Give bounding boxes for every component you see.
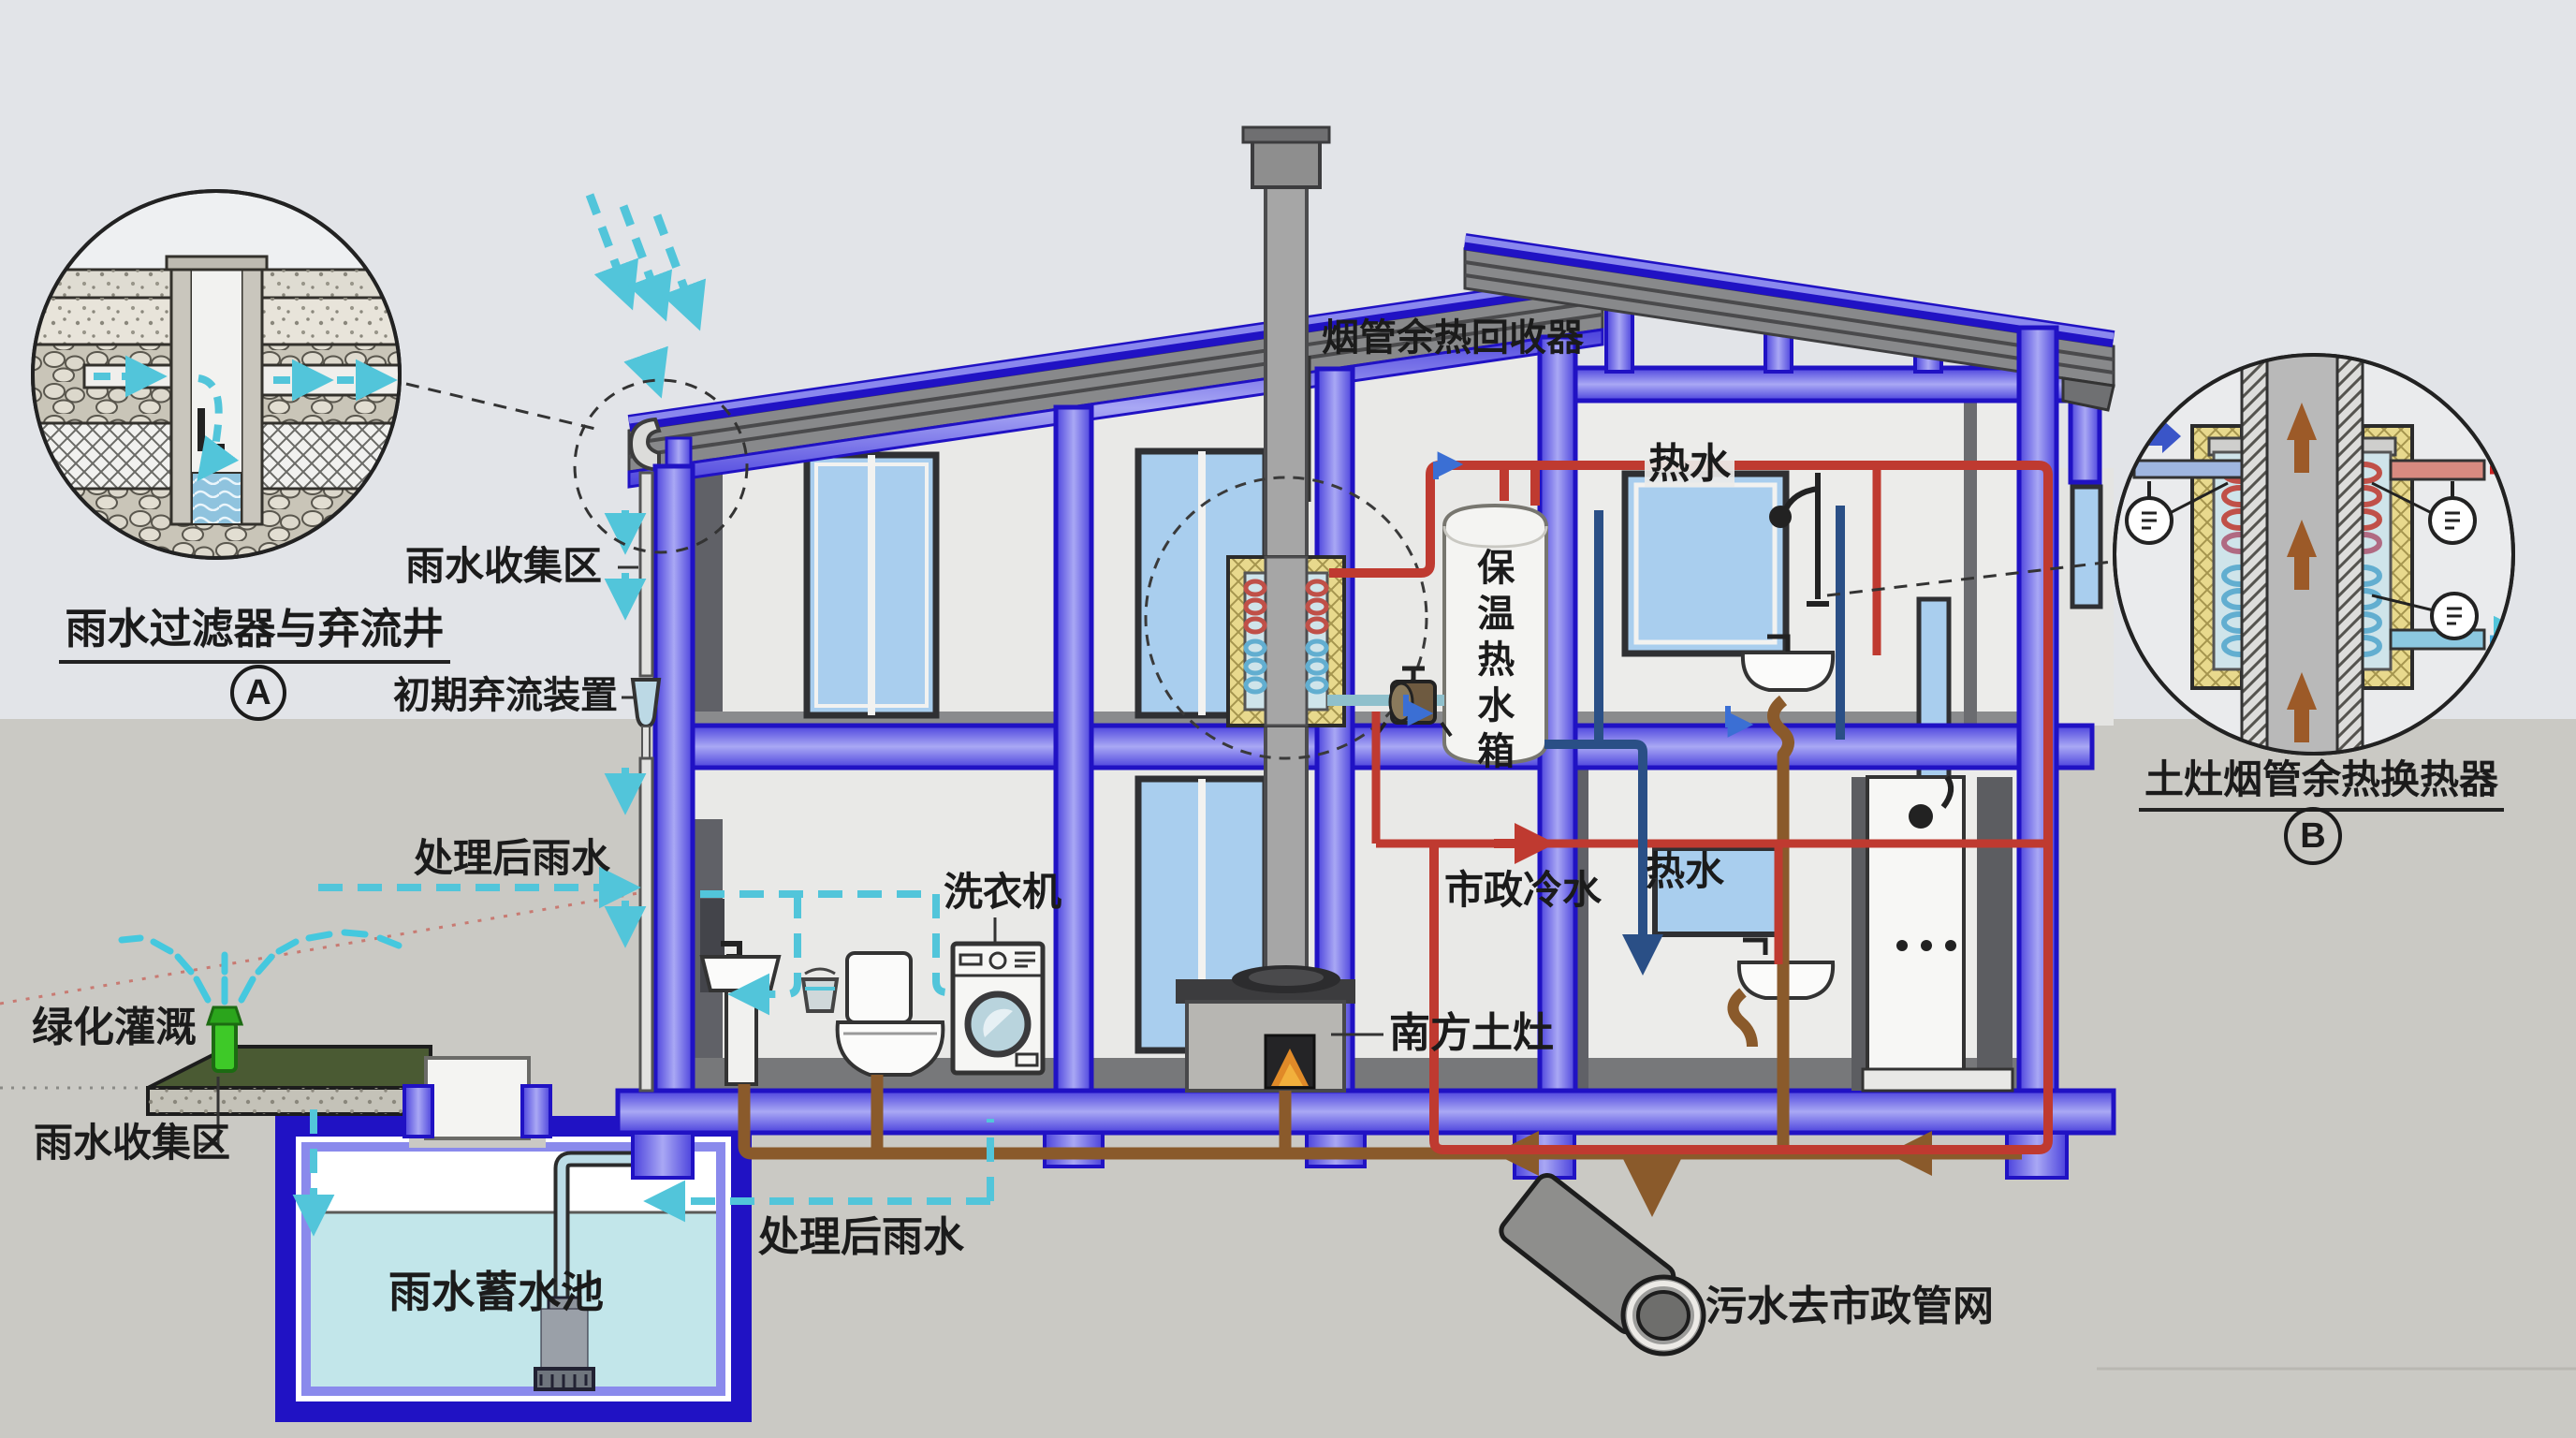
label-circle-b-title: 土灶烟管余热换热器 (2111, 758, 2532, 812)
diagram-stage: 烟管余热回收器 热水 热水 保温热水箱 市政冷水 雨水收集区 初期弃流装置 处理… (0, 0, 2576, 1438)
first-flush-diverter (633, 680, 659, 726)
shower-1f (1851, 777, 2012, 1091)
label-municipal-cold: 市政冷水 (1444, 869, 1602, 911)
washing-machine (953, 944, 1043, 1073)
window-eave-right (2072, 487, 2100, 607)
label-hot-water-lower: 热水 (1646, 850, 1724, 892)
label-rain-collect-lower: 雨水收集区 (34, 1122, 230, 1164)
diagram-canvas (0, 0, 2576, 1438)
label-flue-heat-recovery: 烟管余热回收器 (1322, 318, 1584, 359)
label-rain-tank: 雨水蓄水池 (388, 1269, 604, 1316)
label-insulated-tank: 保温热水箱 (1471, 548, 1512, 777)
ground-floor-slab (618, 1091, 2114, 1133)
column-mid-1 (1056, 407, 1091, 1091)
label-circle-a-title: 雨水过滤器与弃流井 (53, 607, 456, 664)
stove (1176, 965, 1355, 1091)
circle-b-badge: B (2284, 807, 2342, 865)
label-rain-collect-upper: 雨水收集区 (405, 545, 602, 587)
label-hot-water-upper: 热水 (1645, 442, 1734, 487)
window-2f-right (1625, 474, 1786, 653)
label-treated-rain-bottom: 处理后雨水 (758, 1215, 964, 1260)
label-washing-machine: 洗衣机 (944, 871, 1061, 913)
label-sewage-outlet: 污水去市政管网 (1705, 1284, 1994, 1329)
label-south-stove: 南方土灶 (1389, 1011, 1554, 1056)
label-treated-rain-left: 处理后雨水 (414, 837, 610, 879)
circle-a-badge: A (230, 665, 286, 721)
column-left-outer (655, 466, 693, 1091)
window-2f-left (807, 455, 936, 715)
label-green-irrigation: 绿化灌溉 (32, 1005, 197, 1050)
label-initial-diversion: 初期弃流装置 (393, 676, 618, 716)
